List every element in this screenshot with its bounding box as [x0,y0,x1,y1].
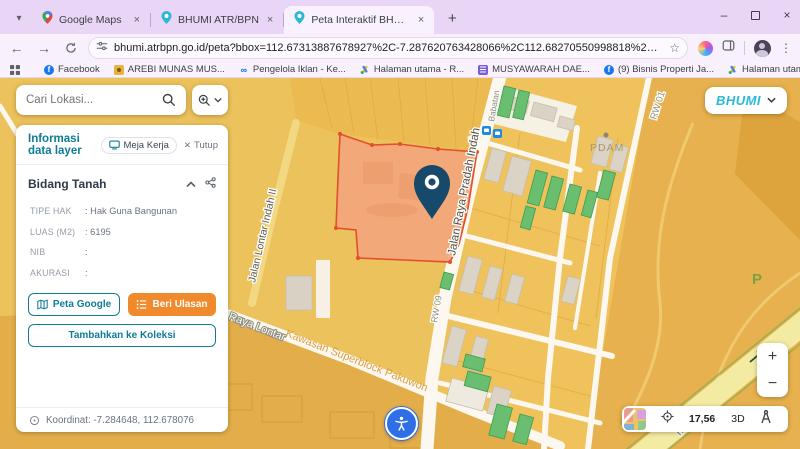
facebook-icon: f [604,65,614,75]
apps-grid-icon[interactable] [10,65,20,75]
arebi-icon [114,65,124,75]
zoom-search-button[interactable] [192,85,228,115]
tab-title: BHUMI ATR/BPN [178,14,259,26]
bookmark-musyawarah[interactable]: MUSYAWARAH DAE... [478,64,590,75]
site-settings-icon[interactable] [96,39,108,57]
peta-google-button[interactable]: Peta Google [28,293,120,316]
minimize-button[interactable]: – [717,8,731,22]
location-search-box[interactable] [16,85,186,115]
panel-title: Informasi data layer [28,133,101,157]
parking-label: P [752,271,762,288]
map-control-bar: 17,56 3D [622,406,788,432]
share-icon[interactable] [205,175,216,193]
chrome-menu-icon[interactable]: ⋮ [780,41,792,55]
panel-header: Informasi data layer Meja Kerja ✕ Tutup [16,125,228,164]
3d-mode-button[interactable]: 3D [731,413,744,425]
search-icon[interactable] [162,93,176,107]
bookmark-halaman-utama-1[interactable]: Halaman utama - R... [360,64,464,75]
bidang-tanah-section: Bidang Tanah [16,165,228,201]
section-title: Bidang Tanah [28,177,177,191]
side-panel-icon[interactable] [722,39,735,57]
crosshair-icon [29,415,40,426]
field-nib: NIB : [16,242,228,263]
field-tipe-hak: TIPE HAK : Hak Guna Bangunan [16,201,228,222]
bhumi-favicon [161,11,172,29]
tab-peta-interaktif-active[interactable]: Peta Interaktif BHUMI ATR/BPN × [284,6,434,34]
browser-window: ▾ Google Maps × BHUMI ATR/BPN × Peta Int… [0,0,800,449]
review-list-icon [136,299,147,310]
facebook-icon: f [44,65,54,75]
tab-title: Google Maps [59,14,126,26]
purple-doc-icon [478,65,488,75]
compass-bearing-icon[interactable] [760,410,772,429]
bhumi-wordmark: BHUMI [716,93,761,108]
bookmark-halaman-utama-2[interactable]: Halaman utama - R... [728,64,800,75]
field-akurasi: AKURASI : [16,263,228,284]
beri-ulasan-button[interactable]: Beri Ulasan [128,293,216,316]
tab-search-icon[interactable]: ▾ [8,7,30,29]
url-text[interactable]: bhumi.atrbpn.go.id/peta?bbox=112.6731388… [114,42,663,54]
google-ads-icon [360,65,370,75]
chevron-down-icon [214,97,222,103]
google-ads-icon [728,65,738,75]
toolbar-separator [744,41,745,55]
close-icon: ✕ [184,140,191,151]
toolbar-extensions: ⋮ [698,39,792,57]
maximize-button[interactable] [751,11,760,20]
extension-icon[interactable] [698,41,713,56]
bookmark-star-icon[interactable]: ☆ [669,41,680,55]
accessibility-widget-button[interactable] [385,407,418,440]
bookmark-arebi[interactable]: AREBI MUNAS MUS... [114,64,225,75]
bookmarks-bar: fFacebook AREBI MUNAS MUS... ∞Pengelola … [0,62,800,78]
meta-icon: ∞ [239,65,249,75]
reload-icon[interactable] [61,37,82,59]
koordinat-bar: Koordinat: -7.284648, 112.678076 [16,407,228,432]
map-region: Jalan Raya Pradah Indah Babatan RW 09 RW… [0,78,800,449]
window-controls: – × [717,0,794,30]
collapse-chevron-up-icon[interactable] [186,175,196,193]
tab-strip: ▾ Google Maps × BHUMI ATR/BPN × Peta Int… [0,0,800,34]
meja-kerja-button[interactable]: Meja Kerja [101,137,177,154]
bookmark-facebook[interactable]: fFacebook [44,64,100,75]
locate-me-icon[interactable] [661,410,674,428]
zoom-in-button[interactable]: + [757,343,788,370]
tambahkan-ke-koleksi-button[interactable]: Tambahkan ke Koleksi [28,324,216,347]
chevron-down-icon [767,95,776,106]
tab-close-icon[interactable]: × [416,14,426,26]
close-window-button[interactable]: × [780,8,794,22]
forward-icon[interactable]: → [33,37,54,59]
koordinat-text: Koordinat: -7.284648, 112.678076 [46,415,194,426]
tab-close-icon[interactable]: × [132,14,142,26]
bhumi-favicon [294,11,305,29]
new-tab-button[interactable]: + [440,6,464,30]
tab-bhumi[interactable]: BHUMI ATR/BPN × [151,6,283,34]
basemap-switcher-thumbnail[interactable] [624,408,646,430]
browser-toolbar: ← → bhumi.atrbpn.go.id/peta?bbox=112.673… [0,34,800,62]
info-data-layer-panel: Informasi data layer Meja Kerja ✕ Tutup … [16,125,228,432]
accessibility-person-icon [393,415,410,432]
panel-actions: Peta Google Beri Ulasan [16,283,228,316]
tab-google-maps[interactable]: Google Maps × [32,6,150,34]
bookmark-pengelola-iklan[interactable]: ∞Pengelola Iklan - Ke... [239,64,346,75]
search-input[interactable] [26,94,162,106]
map-icon [37,299,48,310]
google-maps-favicon [42,11,53,29]
tutup-close-button[interactable]: ✕ Tutup [184,140,218,151]
url-bar[interactable]: bhumi.atrbpn.go.id/peta?bbox=112.6731388… [88,37,688,59]
zoom-out-button[interactable]: − [757,370,788,397]
label-pdam: PDAM [590,142,624,154]
field-luas: LUAS (M2) : 6195 [16,222,228,243]
zoom-to-area-icon [198,94,211,107]
zoom-level-value[interactable]: 17,56 [689,413,715,425]
workspace-icon [109,140,120,150]
tab-title: Peta Interaktif BHUMI ATR/BPN [311,14,410,26]
tab-close-icon[interactable]: × [265,14,275,26]
panel-spacer [16,347,228,407]
bhumi-logo-button[interactable]: BHUMI [705,87,787,114]
map-zoom-controls: + − [757,343,788,397]
bookmark-bisnis-properti[interactable]: f(9) Bisnis Properti Ja... [604,64,714,75]
profile-avatar[interactable] [754,40,771,57]
back-icon[interactable]: ← [6,37,27,59]
